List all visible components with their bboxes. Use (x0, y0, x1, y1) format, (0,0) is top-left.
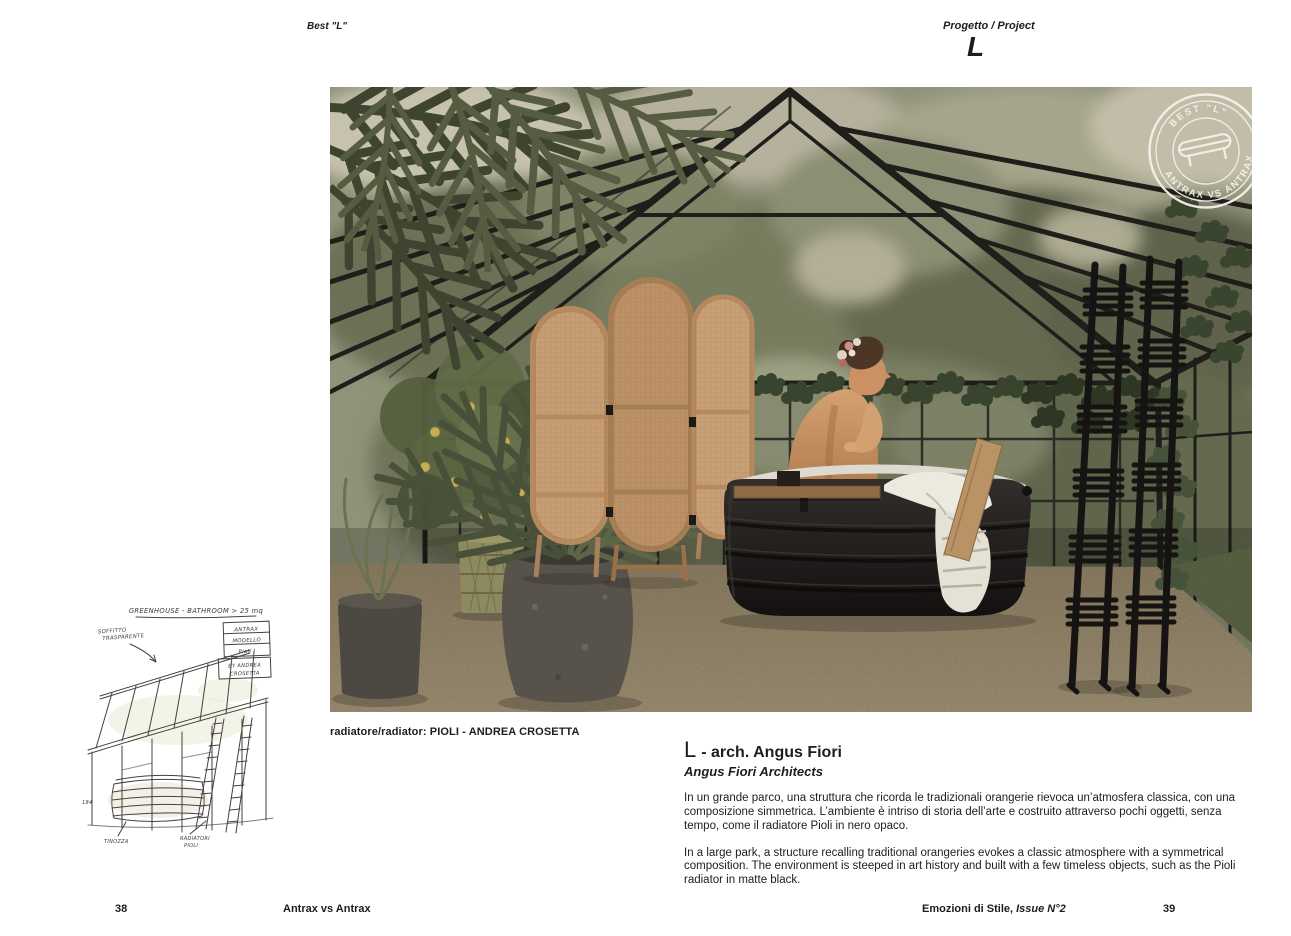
sketch-box-line-5: CROSETTA (230, 671, 260, 678)
article-title: L- arch. Angus Fiori (684, 738, 1241, 762)
header-right-label: Progetto / Project (943, 20, 1035, 32)
page-number-left: 38 (115, 903, 127, 915)
photo-caption: radiatore/radiator: PIOLI - ANDREA CROSE… (330, 726, 580, 738)
footer-magazine-name: Emozioni di Stile, (922, 903, 1016, 915)
sketch-box-line-4: BY ANDREA (228, 662, 261, 669)
magazine-spread: Best "L" Progetto / Project L (0, 0, 1291, 936)
sketch-tub-label: TINOZZA (104, 839, 129, 845)
paragraph-italian: In un grande parco, una struttura che ri… (684, 792, 1241, 833)
sketch-box-line-2: MODELLO (232, 637, 261, 644)
article-subtitle: Angus Fiori Architects (684, 764, 1241, 779)
paragraph-english: In a large park, a structure recalling t… (684, 847, 1241, 888)
article-title-letter: L (684, 737, 696, 762)
stone-pot (338, 593, 422, 699)
greenhouse-photo-art: BEST "L" ANTRAX VS ANTRAX (330, 87, 1252, 712)
footer-issue: Issue N°2 (1016, 903, 1066, 915)
screen-panel-center (611, 280, 691, 581)
footer-magazine: Emozioni di Stile, Issue N°2 (922, 903, 1066, 915)
sketch-box-line-1: ANTRAX (233, 627, 258, 634)
concept-sketch-art: GREENHOUSE - BATHROOM > 25 mq SOFFITTO T… (78, 600, 284, 855)
concept-sketch: GREENHOUSE - BATHROOM > 25 mq SOFFITTO T… (78, 600, 284, 855)
sketch-radiators-label-2: PIOLI (184, 843, 198, 849)
sketch-title: GREENHOUSE - BATHROOM > 25 mq (129, 607, 264, 615)
project-letter: L (967, 31, 984, 63)
article-title-rest: - arch. Angus Fiori (701, 744, 842, 761)
header-left-label: Best "L" (307, 21, 347, 32)
greenhouse-photo: BEST "L" ANTRAX VS ANTRAX (330, 87, 1252, 712)
article-block: L- arch. Angus Fiori Angus Fiori Archite… (684, 738, 1241, 888)
tub-handle (1022, 486, 1032, 496)
sketch-number: 184 (82, 800, 92, 806)
sketch-radiators-label-1: RADIATORI (180, 836, 210, 842)
page-number-right: 39 (1163, 903, 1175, 915)
footer-brand: Antrax vs Antrax (283, 903, 371, 915)
sketch-box-line-3: Pioli ! (239, 649, 256, 656)
